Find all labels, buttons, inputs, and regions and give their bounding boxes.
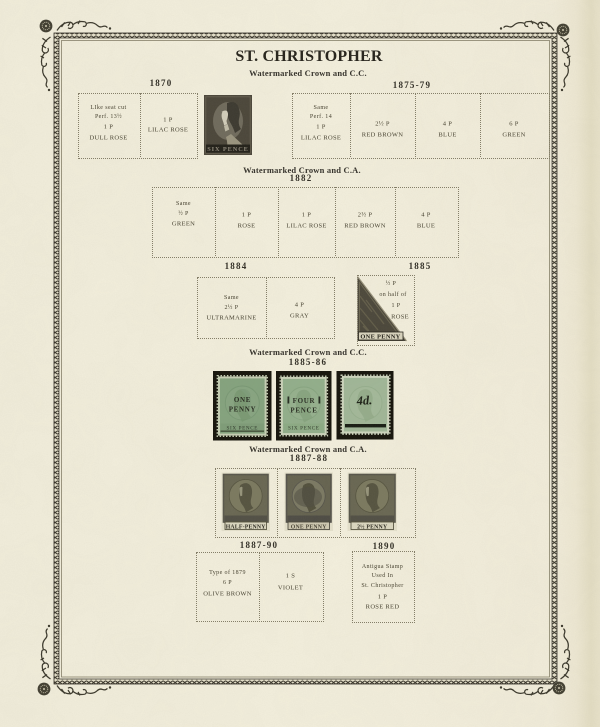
svg-text:FOUR: FOUR — [293, 397, 316, 405]
svg-text:ONE: ONE — [234, 396, 251, 404]
svg-text:PENNY: PENNY — [229, 406, 257, 414]
svg-text:SIX PENCE: SIX PENCE — [227, 425, 258, 431]
svg-text:4d.: 4d. — [355, 393, 372, 408]
svg-text:SIX PENCE: SIX PENCE — [288, 425, 319, 431]
svg-text:SIX PENCE: SIX PENCE — [207, 146, 249, 153]
svg-text:PENCE: PENCE — [290, 407, 317, 415]
